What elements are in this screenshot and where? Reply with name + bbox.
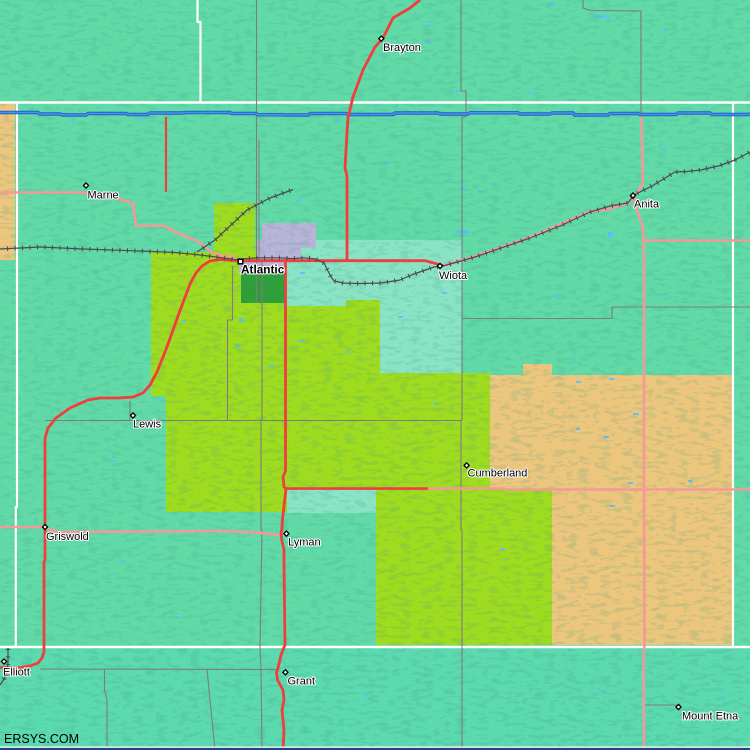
- svg-text:Cumberland: Cumberland: [468, 468, 528, 480]
- svg-text:Griswold: Griswold: [46, 531, 89, 543]
- svg-text:ERSYS.COM: ERSYS.COM: [4, 732, 79, 746]
- svg-text:Anita: Anita: [634, 199, 660, 211]
- svg-text:Brayton: Brayton: [383, 42, 421, 54]
- svg-text:Grant: Grant: [288, 676, 316, 688]
- svg-text:Mount Etna: Mount Etna: [682, 711, 739, 723]
- svg-text:Elliott: Elliott: [3, 667, 30, 679]
- svg-text:Wiota: Wiota: [439, 270, 468, 282]
- svg-text:Lyman: Lyman: [288, 537, 321, 549]
- svg-text:Marne: Marne: [88, 190, 119, 202]
- svg-text:Atlantic: Atlantic: [241, 263, 285, 277]
- svg-text:Lewis: Lewis: [133, 419, 162, 431]
